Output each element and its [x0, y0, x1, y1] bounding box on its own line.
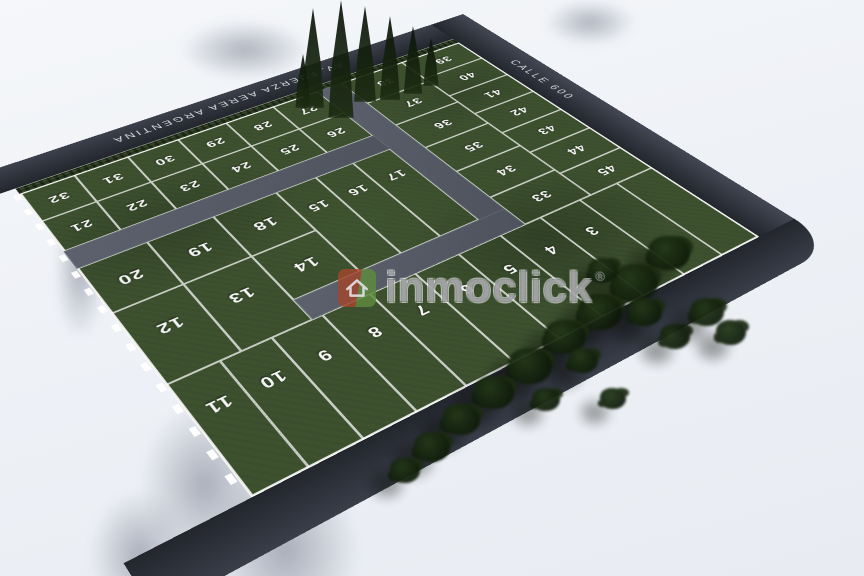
watermark: inmoclick ® [338, 263, 602, 313]
ground-shadow [545, 0, 635, 45]
lot-number: 29 [201, 136, 227, 150]
tree [600, 388, 626, 409]
lot-number: 43 [533, 123, 560, 137]
lot-number: 19 [182, 239, 216, 260]
lot-number: 18 [248, 213, 281, 233]
lot-number: 33 [526, 188, 555, 204]
lot-number: 30 [151, 153, 178, 168]
tree [660, 324, 690, 349]
lot-number: 45 [592, 163, 620, 178]
lot-number: 32 [44, 190, 72, 206]
lot-number: 3 [579, 223, 602, 238]
lot-number: 20 [112, 265, 147, 287]
lot-number: 21 [66, 217, 95, 234]
lot-number: 25 [276, 142, 303, 157]
lot-number: 42 [505, 105, 531, 118]
lot-number: 22 [122, 197, 150, 214]
house-icon [338, 269, 376, 307]
lot-number: 31 [99, 171, 126, 187]
lot-number: 16 [343, 182, 371, 198]
lot-number: 28 [249, 119, 275, 133]
lot-number: 11 [200, 391, 236, 417]
tree [414, 432, 450, 462]
lot-number: 17 [381, 167, 409, 183]
tree [568, 348, 598, 373]
house-icon-glyph [344, 275, 370, 301]
lot-number: 9 [312, 345, 336, 364]
tree [390, 458, 420, 483]
lot-number: 13 [223, 284, 259, 307]
lot-number: 36 [429, 117, 455, 131]
lot-number: 41 [479, 87, 504, 100]
lot-number: 37 [400, 96, 425, 109]
tree [474, 376, 514, 409]
tree [532, 388, 560, 411]
lot-number: 8 [361, 323, 385, 341]
tree [716, 320, 746, 345]
lot-number: 34 [492, 163, 520, 178]
lot-number: 35 [459, 140, 486, 155]
lot-number: 23 [176, 178, 204, 194]
watermark-brand: inmoclick [385, 263, 592, 313]
lot-number: 24 [227, 160, 254, 175]
lot-number: 44 [562, 142, 589, 157]
lot-number: 15 [304, 197, 333, 214]
lot-number: 40 [454, 70, 479, 82]
tree [612, 264, 658, 302]
lot-number: 10 [254, 366, 290, 391]
lot-number: 4 [539, 241, 562, 256]
tree [508, 348, 552, 384]
tree [690, 298, 724, 326]
render-canvas: AV. FUERZA AEREA ARGENTINA CALLE 600 CAL… [0, 0, 864, 576]
lot-number: 26 [323, 125, 349, 139]
tree [442, 404, 480, 435]
tree [628, 298, 662, 326]
lot-number: 14 [288, 253, 323, 275]
registered-mark: ® [594, 268, 604, 283]
lot-number: 12 [151, 313, 188, 338]
tree [648, 236, 690, 270]
